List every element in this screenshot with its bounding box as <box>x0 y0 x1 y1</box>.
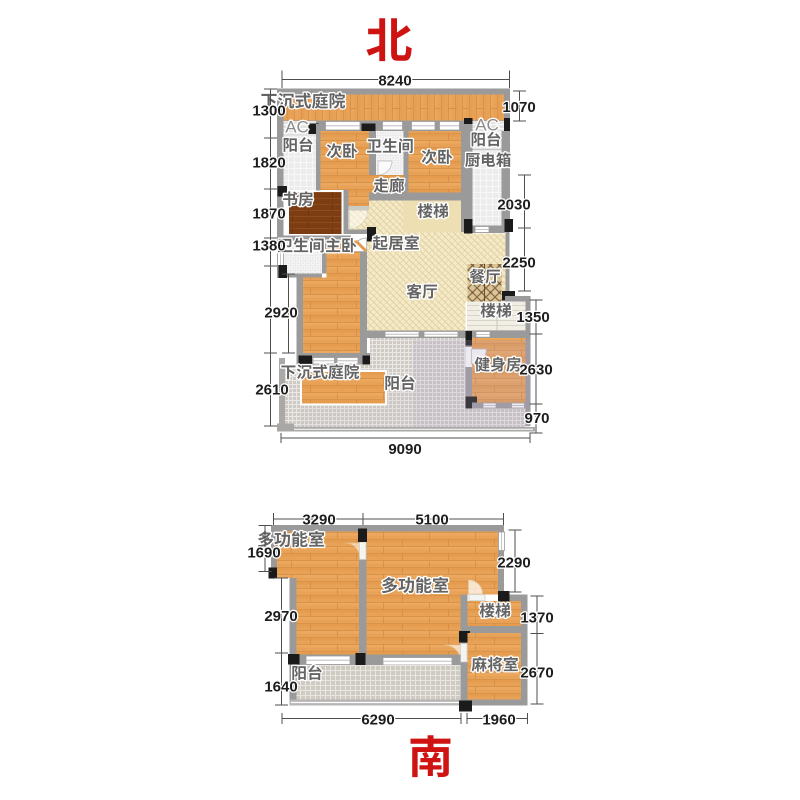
svg-text:9090: 9090 <box>388 441 421 458</box>
svg-text:6290: 6290 <box>361 711 394 728</box>
svg-text:970: 970 <box>524 410 549 427</box>
svg-text:2610: 2610 <box>255 381 288 398</box>
svg-text:1690: 1690 <box>247 544 280 561</box>
svg-text:1820: 1820 <box>252 154 285 171</box>
svg-text:1300: 1300 <box>252 102 285 119</box>
svg-text:2670: 2670 <box>520 664 553 681</box>
svg-text:2970: 2970 <box>264 608 297 625</box>
svg-text:2250: 2250 <box>502 254 535 271</box>
svg-text:1350: 1350 <box>516 309 549 326</box>
svg-text:2030: 2030 <box>497 196 530 213</box>
svg-text:1960: 1960 <box>482 711 515 728</box>
svg-text:AC: AC <box>285 118 309 137</box>
svg-text:2290: 2290 <box>497 554 530 571</box>
svg-text:2630: 2630 <box>519 361 552 378</box>
svg-text:1870: 1870 <box>252 205 285 222</box>
svg-text:1380: 1380 <box>252 237 285 254</box>
svg-text:8240: 8240 <box>378 72 411 89</box>
svg-text:1370: 1370 <box>520 609 553 626</box>
svg-text:1640: 1640 <box>264 678 297 695</box>
svg-text:2920: 2920 <box>264 304 297 321</box>
svg-text:1070: 1070 <box>502 99 535 116</box>
